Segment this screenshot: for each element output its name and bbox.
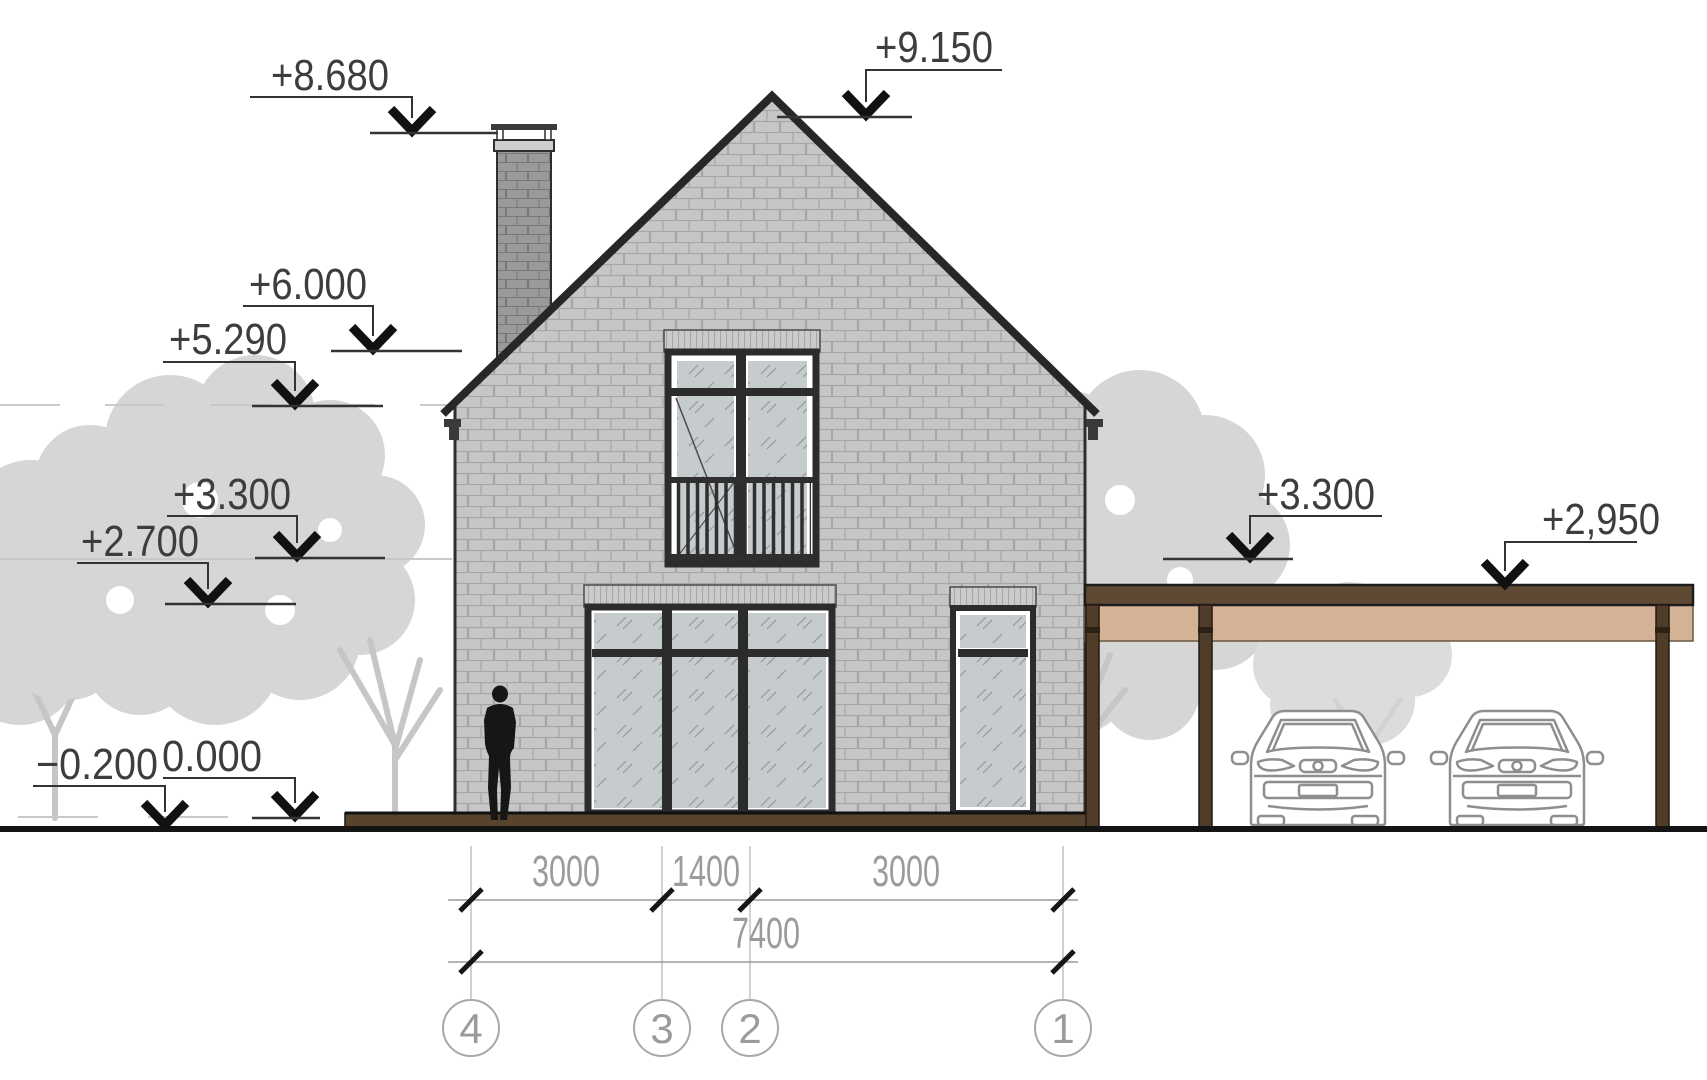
axis-label-2: 2 (738, 1005, 761, 1052)
label-ground-zero: 0.000 (162, 732, 262, 781)
ground-floor-glazing (584, 585, 836, 813)
marker-roof-peak: +9.150 (777, 23, 1002, 117)
dim-total: 7400 (732, 909, 800, 958)
label-eaves: +5.290 (169, 315, 287, 364)
marker-chimney-top: +8.680 (250, 51, 498, 133)
plinth (345, 813, 1094, 828)
dimension-chain: 3000 1400 3000 7400 4 3 2 1 (443, 846, 1091, 1056)
car-right (1431, 711, 1603, 825)
chimney-cap-plate (491, 124, 557, 130)
parked-cars (1232, 711, 1603, 825)
dim-segment-3: 3000 (872, 847, 940, 896)
label-carport-roof: +2,950 (1542, 495, 1660, 544)
drawing-canvas: +8.680 +9.150 +6.000 +5.290 +3.300 +2.70… (0, 0, 1707, 1080)
carport-fascia (1085, 605, 1693, 641)
axis-label-1: 1 (1051, 1005, 1074, 1052)
ground-line (0, 826, 1707, 832)
narrow-window-lintel (950, 587, 1036, 607)
label-roof-upper: +6.000 (249, 260, 367, 309)
gutter-bracket-left (444, 419, 461, 440)
label-floor-left: +3.300 (173, 470, 291, 519)
dim-segment-1: 3000 (532, 847, 600, 896)
label-lintel-left: +2.700 (81, 517, 199, 566)
carport-roof-slab (1085, 585, 1693, 605)
grid-axis-bubbles: 4 3 2 1 (443, 1000, 1091, 1056)
label-chimney-top: +8.680 (271, 51, 389, 100)
upper-window (664, 330, 820, 564)
marker-carport-roof: +2,950 (1484, 495, 1660, 584)
label-floor-right: +3.300 (1257, 470, 1375, 519)
axis-label-4: 4 (459, 1005, 482, 1052)
label-ground-minus: −0.200 (36, 740, 158, 789)
narrow-window (950, 587, 1036, 813)
axis-label-3: 3 (650, 1005, 673, 1052)
dim-segment-2: 1400 (672, 847, 740, 896)
elevation-drawing: +8.680 +9.150 +6.000 +5.290 +3.300 +2.70… (0, 0, 1707, 1080)
label-roof-peak: +9.150 (875, 23, 993, 72)
